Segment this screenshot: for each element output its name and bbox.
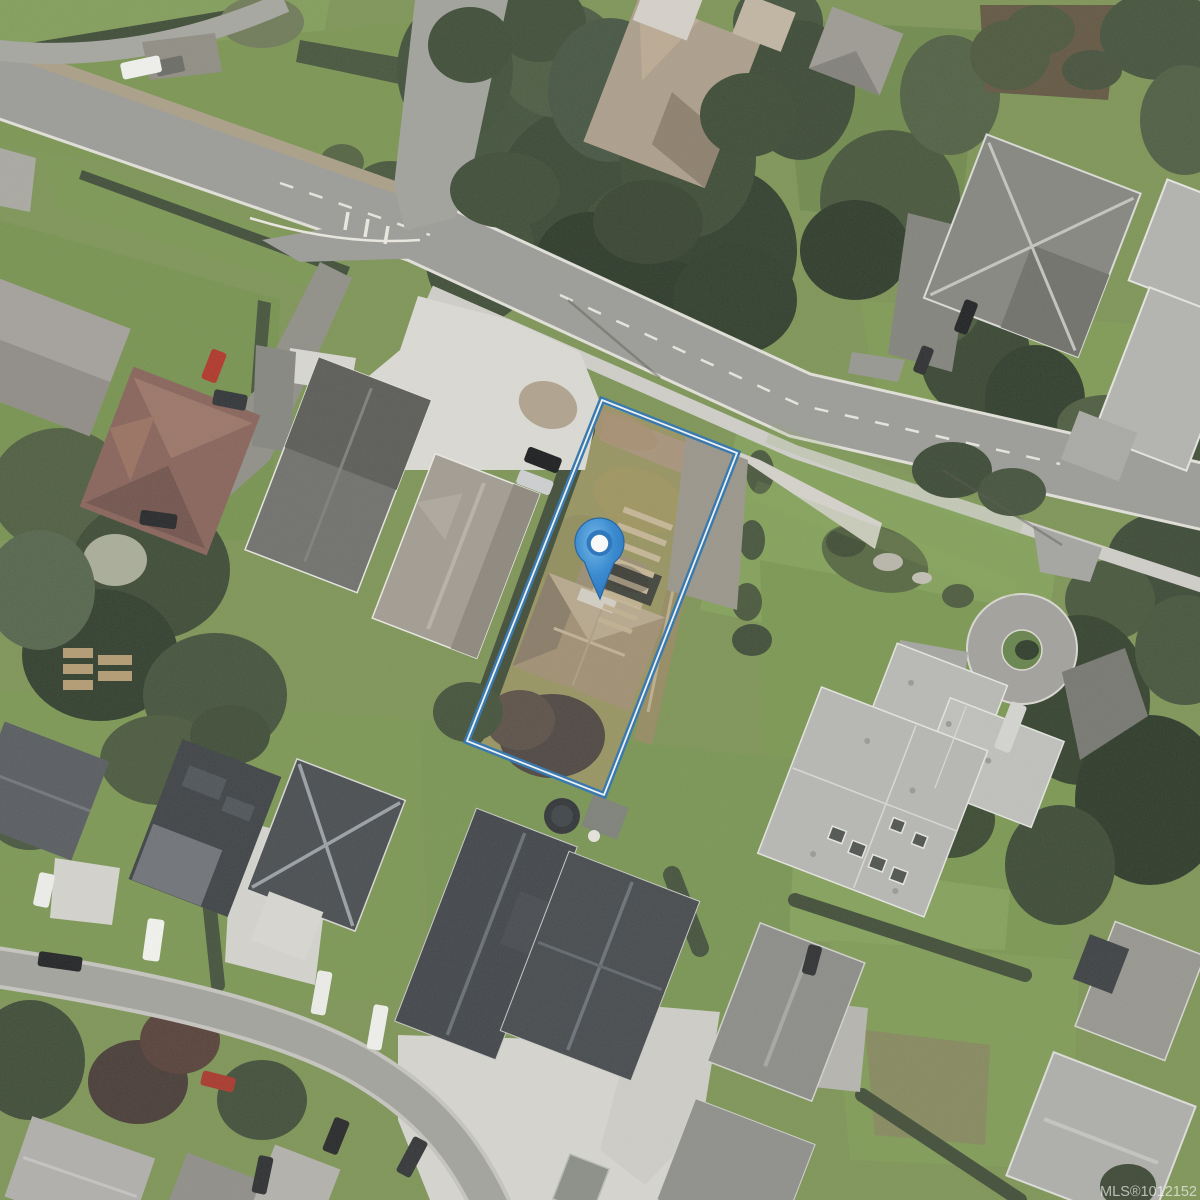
svg-text:MLS®1012152: MLS®1012152 [1100, 1184, 1197, 1200]
